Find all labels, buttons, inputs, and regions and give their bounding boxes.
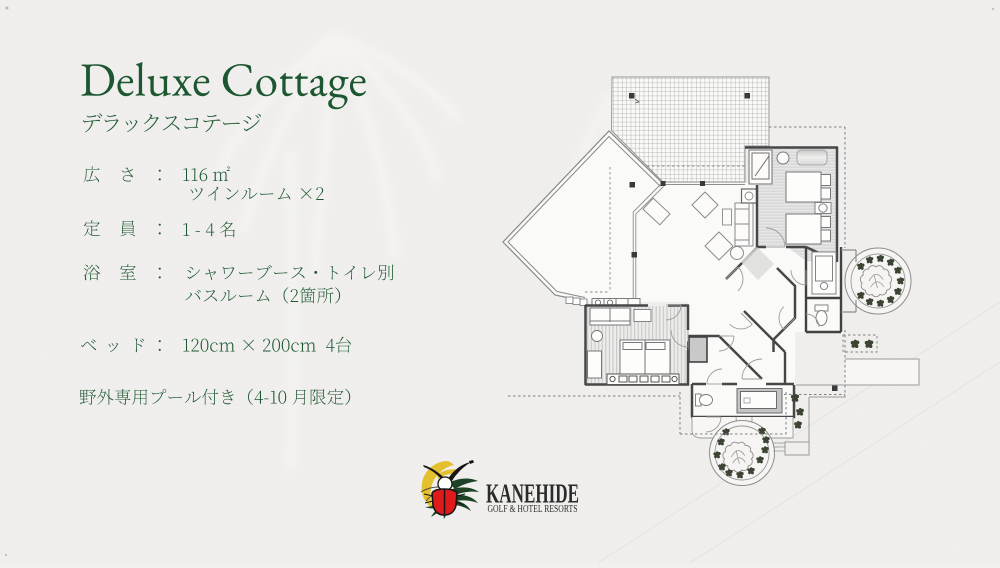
svg-text:GOLF & HOTEL RESORTS: GOLF & HOTEL RESORTS	[488, 504, 578, 515]
